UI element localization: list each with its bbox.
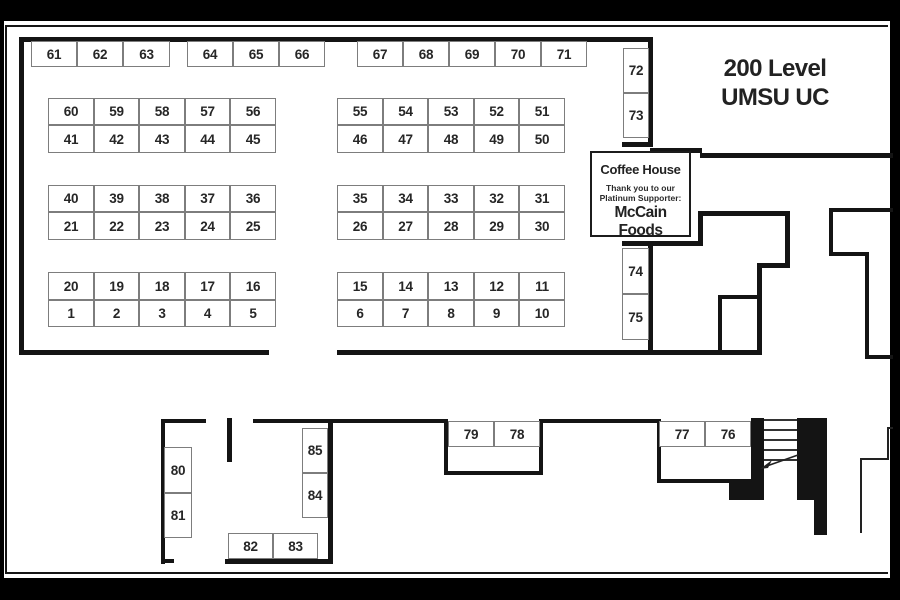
stairs-direction-arrow-icon [757, 449, 803, 475]
booth-82: 82 [228, 533, 273, 559]
booth-16: 16 [230, 272, 276, 300]
booth-30: 30 [519, 212, 565, 240]
booth-60: 60 [48, 98, 94, 125]
wall [543, 419, 661, 423]
wall [161, 419, 206, 423]
wall [718, 295, 722, 355]
booth-14: 14 [383, 272, 428, 300]
stair-tread [764, 439, 797, 441]
booth-19: 19 [94, 272, 139, 300]
booth-47: 47 [383, 125, 428, 153]
booth-80: 80 [164, 447, 192, 493]
wall [328, 419, 333, 562]
booth-5: 5 [230, 300, 276, 327]
booth-21: 21 [48, 212, 94, 240]
booth-28: 28 [428, 212, 474, 240]
wall [19, 37, 24, 355]
booth-81: 81 [164, 493, 192, 538]
booth-73: 73 [623, 93, 649, 138]
wall [253, 419, 447, 423]
booth-39: 39 [94, 185, 139, 212]
wall [829, 208, 893, 212]
booth-61: 61 [31, 41, 77, 67]
booth-75: 75 [622, 294, 649, 340]
booth-1: 1 [48, 300, 94, 327]
booth-67: 67 [357, 41, 403, 67]
booth-74: 74 [622, 248, 649, 294]
wall [337, 350, 762, 355]
booth-15: 15 [337, 272, 383, 300]
coffee-house-sponsor: McCain Foods [592, 204, 689, 240]
wall [865, 355, 893, 359]
page-title-line2: UMSU UC [690, 83, 860, 112]
booth-64: 64 [187, 41, 233, 67]
booth-51: 51 [519, 98, 565, 125]
booth-71: 71 [541, 41, 587, 67]
booth-65: 65 [233, 41, 279, 67]
wall [444, 471, 543, 475]
booth-40: 40 [48, 185, 94, 212]
booth-70: 70 [495, 41, 541, 67]
booth-57: 57 [185, 98, 230, 125]
booth-12: 12 [474, 272, 519, 300]
booth-33: 33 [428, 185, 474, 212]
booth-10: 10 [519, 300, 565, 327]
booth-52: 52 [474, 98, 519, 125]
booth-41: 41 [48, 125, 94, 153]
coffee-house-box: Coffee House Thank you to our Platinum S… [590, 151, 691, 237]
booth-84: 84 [302, 473, 328, 518]
booth-25: 25 [230, 212, 276, 240]
thin-wall [860, 458, 889, 460]
booth-6: 6 [337, 300, 383, 327]
booth-35: 35 [337, 185, 383, 212]
booth-44: 44 [185, 125, 230, 153]
wall [227, 418, 232, 462]
coffee-house-thanks-line2: Platinum Supporter: [592, 193, 689, 203]
booth-54: 54 [383, 98, 428, 125]
wall [622, 142, 653, 147]
booth-79: 79 [448, 421, 494, 447]
booth-24: 24 [185, 212, 230, 240]
wall [757, 263, 762, 355]
booth-48: 48 [428, 125, 474, 153]
booth-45: 45 [230, 125, 276, 153]
booth-20: 20 [48, 272, 94, 300]
wall [785, 211, 790, 268]
floor-plan-page: 6162636465666768697071605958575641424344… [0, 0, 900, 600]
page-title-line1: 200 Level [690, 54, 860, 83]
booth-69: 69 [449, 41, 495, 67]
booth-55: 55 [337, 98, 383, 125]
booth-53: 53 [428, 98, 474, 125]
booth-17: 17 [185, 272, 230, 300]
thin-wall [887, 427, 889, 460]
wall [19, 350, 269, 355]
booth-31: 31 [519, 185, 565, 212]
wall [700, 153, 893, 158]
booth-66: 66 [279, 41, 325, 67]
booth-8: 8 [428, 300, 474, 327]
booth-34: 34 [383, 185, 428, 212]
wall [829, 208, 833, 256]
booth-23: 23 [139, 212, 185, 240]
booth-22: 22 [94, 212, 139, 240]
wall [225, 559, 333, 564]
wall [829, 252, 869, 256]
wall [622, 241, 703, 246]
booth-37: 37 [185, 185, 230, 212]
stair-tread [764, 429, 797, 431]
coffee-house-name: Coffee House [592, 162, 689, 177]
booth-43: 43 [139, 125, 185, 153]
booth-18: 18 [139, 272, 185, 300]
booth-7: 7 [383, 300, 428, 327]
booth-42: 42 [94, 125, 139, 153]
booth-68: 68 [403, 41, 449, 67]
page-title: 200 Level UMSU UC [690, 54, 860, 112]
wall [729, 483, 764, 500]
wall [718, 295, 762, 299]
booth-11: 11 [519, 272, 565, 300]
thin-wall [860, 458, 862, 533]
booth-26: 26 [337, 212, 383, 240]
booth-83: 83 [273, 533, 318, 559]
booth-63: 63 [123, 41, 170, 67]
booth-62: 62 [77, 41, 123, 67]
booth-85: 85 [302, 428, 328, 473]
booth-38: 38 [139, 185, 185, 212]
booth-13: 13 [428, 272, 474, 300]
wall [161, 559, 174, 563]
coffee-house-thanks-line1: Thank you to our [592, 183, 689, 193]
booth-2: 2 [94, 300, 139, 327]
booth-32: 32 [474, 185, 519, 212]
booth-59: 59 [94, 98, 139, 125]
booth-50: 50 [519, 125, 565, 153]
wall [698, 211, 703, 246]
stair-tread [764, 419, 797, 421]
booth-27: 27 [383, 212, 428, 240]
booth-49: 49 [474, 125, 519, 153]
wall [865, 252, 869, 359]
booth-4: 4 [185, 300, 230, 327]
wall [814, 500, 827, 535]
booth-77: 77 [659, 421, 705, 447]
booth-3: 3 [139, 300, 185, 327]
booth-72: 72 [623, 48, 649, 93]
booth-56: 56 [230, 98, 276, 125]
booth-78: 78 [494, 421, 540, 447]
booth-58: 58 [139, 98, 185, 125]
booth-36: 36 [230, 185, 276, 212]
booth-9: 9 [474, 300, 519, 327]
booth-29: 29 [474, 212, 519, 240]
booth-46: 46 [337, 125, 383, 153]
wall [698, 211, 790, 216]
booth-76: 76 [705, 421, 751, 447]
